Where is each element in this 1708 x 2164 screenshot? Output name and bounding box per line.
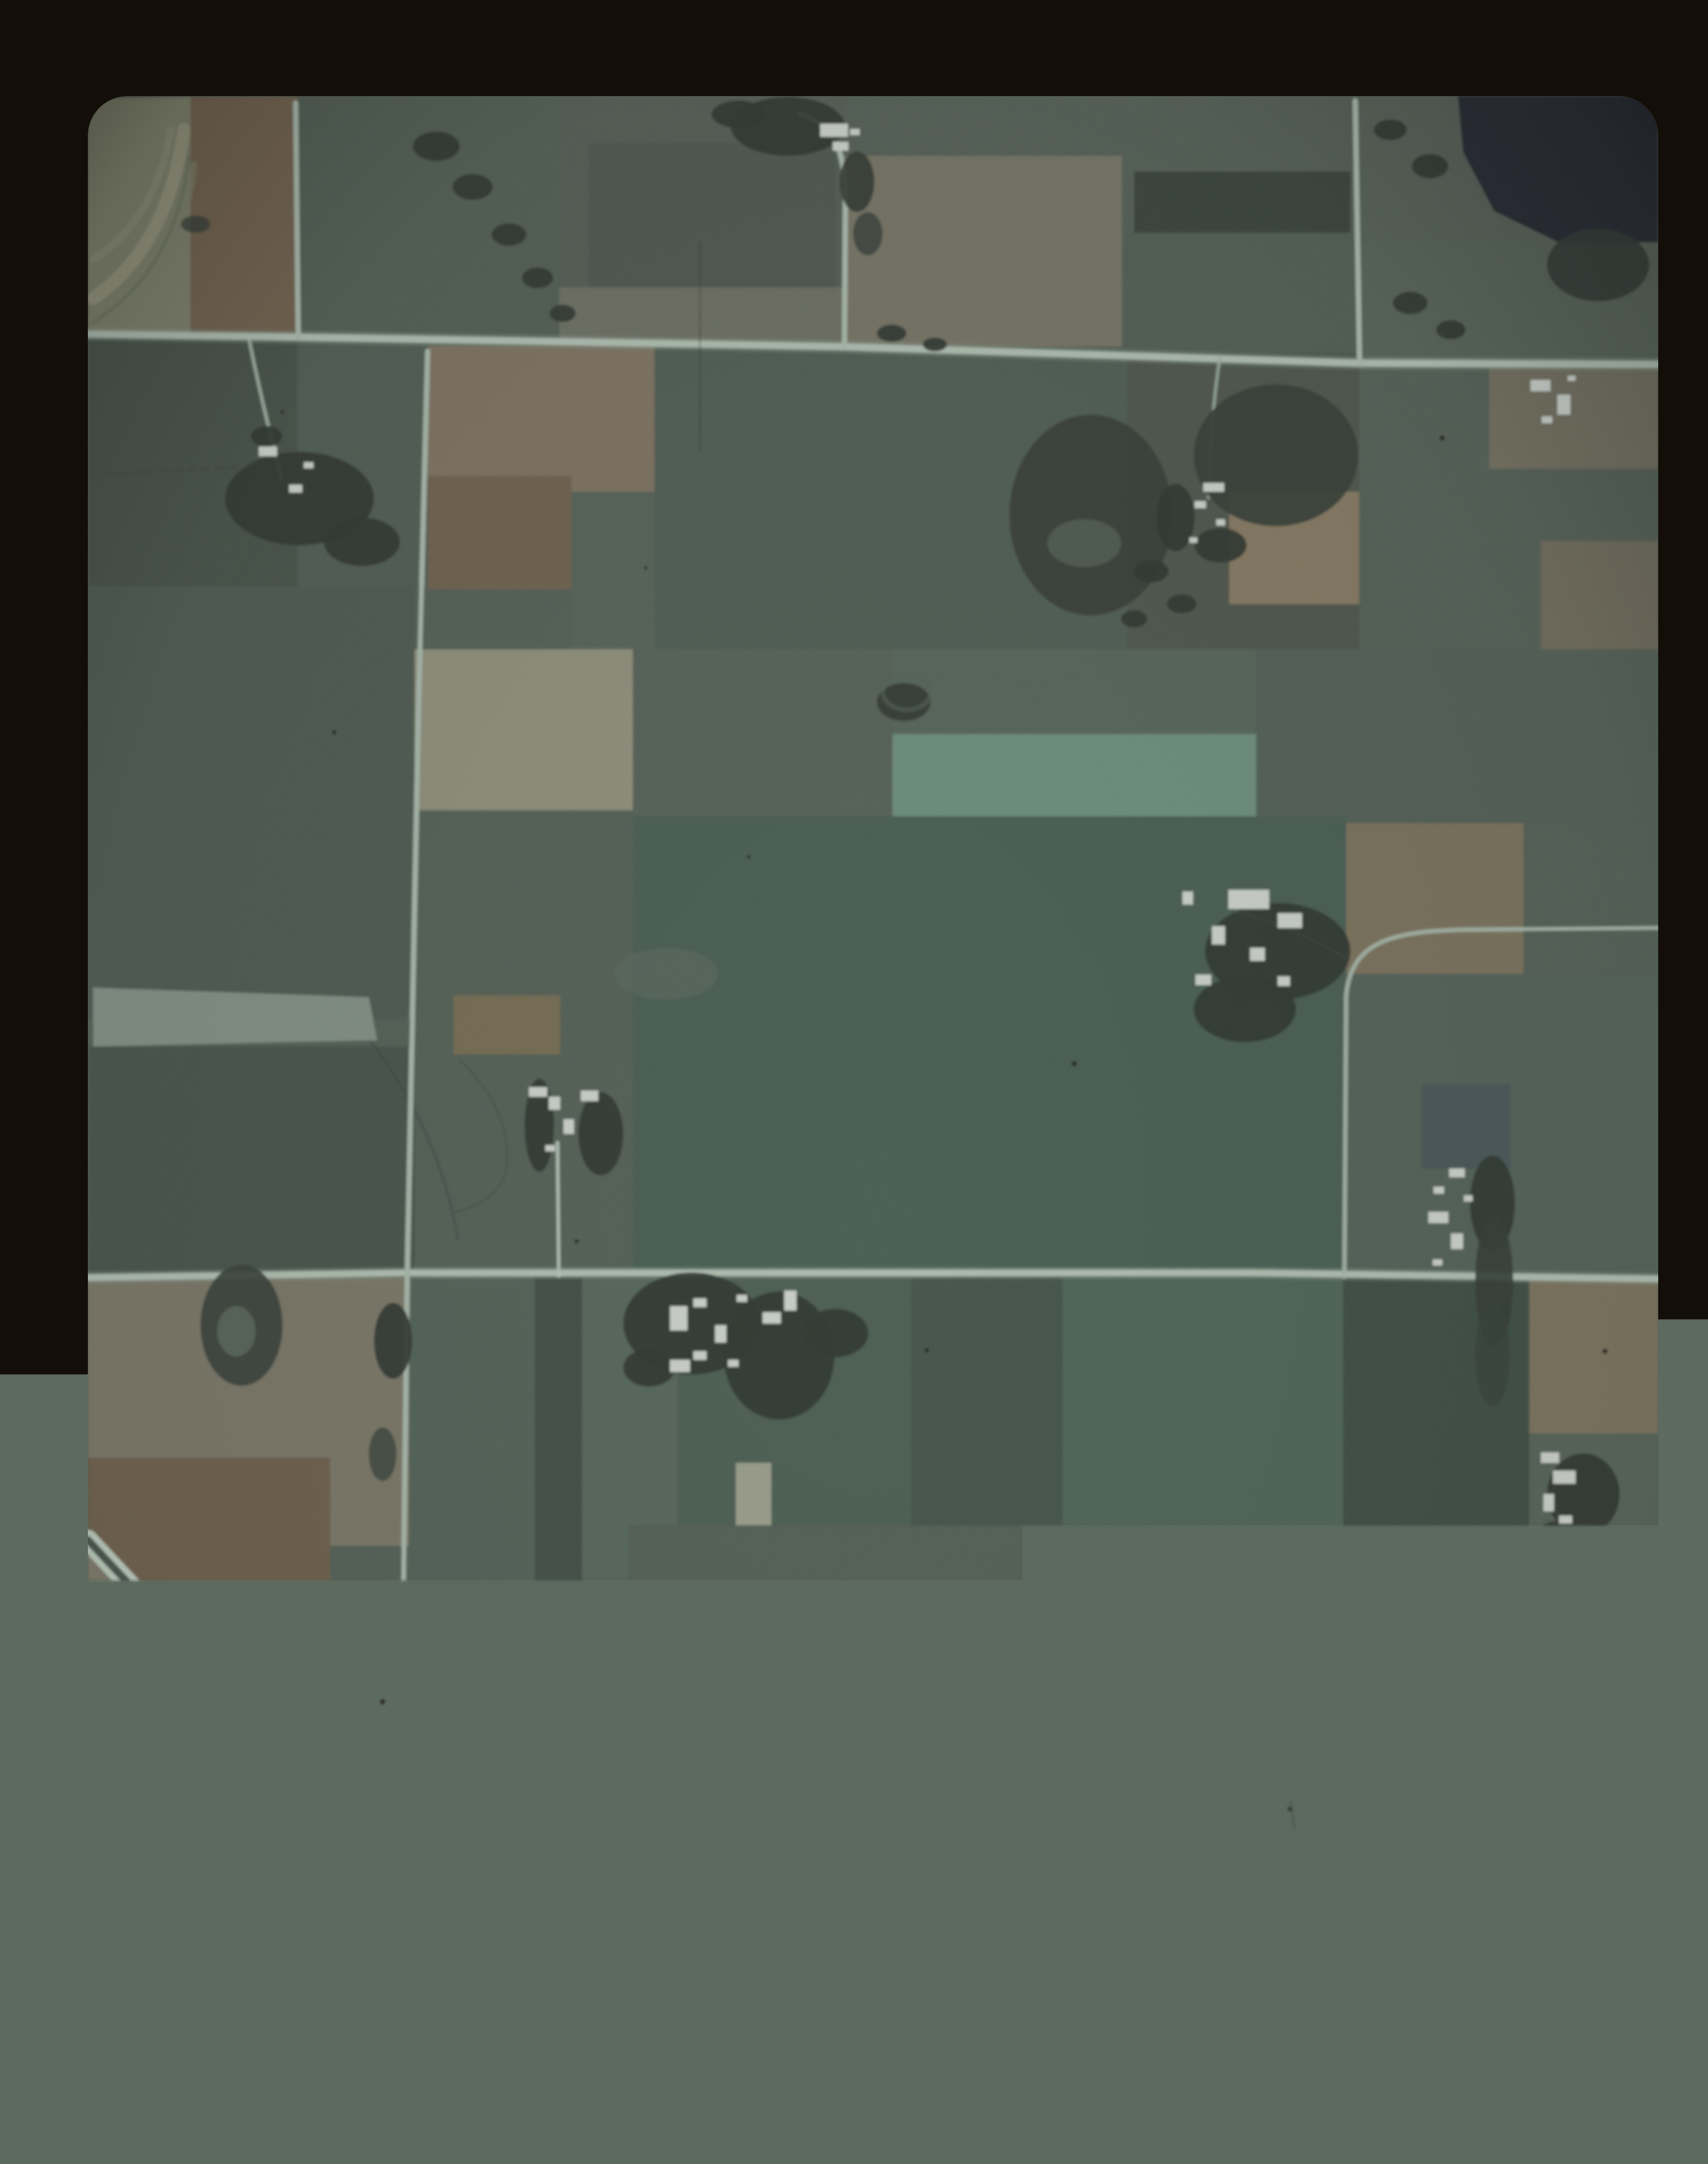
vignette [88,96,1658,2164]
aerial-photo-slide [0,0,1708,2164]
slide-mount [0,0,1708,2164]
